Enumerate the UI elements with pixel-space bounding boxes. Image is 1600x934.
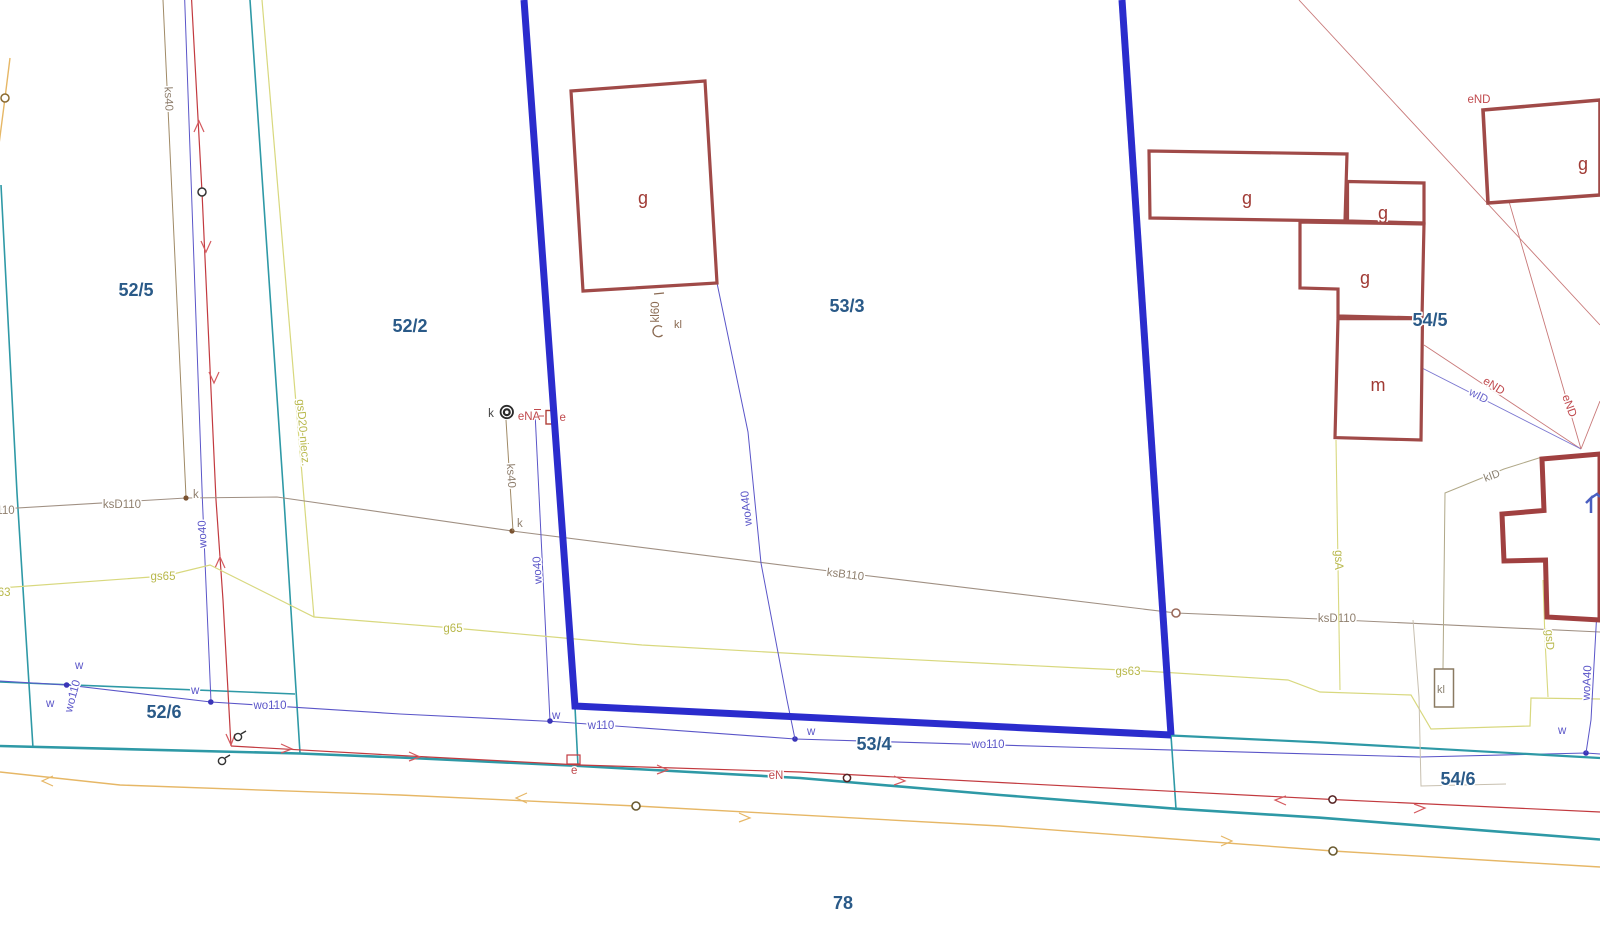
svg-text:ksD110: ksD110 [1318,613,1356,625]
svg-text:g: g [1378,203,1388,223]
svg-text:eN: eN [769,770,784,782]
svg-text:wo40: wo40 [197,520,210,549]
svg-text:g: g [638,188,648,208]
svg-text:52/2: 52/2 [392,316,427,336]
svg-text:wo110: wo110 [252,700,286,712]
svg-text:w: w [74,660,84,672]
svg-text:53/3: 53/3 [829,296,864,316]
svg-text:k: k [193,489,199,501]
svg-text:eNA: eNA [518,411,541,423]
svg-text:78: 78 [833,893,853,913]
svg-text:wo110: wo110 [970,739,1004,751]
svg-text:w110: w110 [587,720,615,732]
svg-text:ks40: ks40 [504,463,517,488]
svg-text:wo40: wo40 [531,556,544,585]
svg-text:e: e [560,412,566,424]
svg-text:52/6: 52/6 [146,702,181,722]
svg-text:w: w [551,710,561,722]
svg-text:w: w [806,726,816,738]
svg-text:eND: eND [1467,94,1490,106]
svg-text:kl60: kl60 [650,301,662,322]
svg-text:D110: D110 [0,505,15,517]
svg-text:m: m [1371,375,1386,395]
svg-text:s63: s63 [0,587,11,599]
svg-text:54/5: 54/5 [1412,310,1447,330]
svg-text:52/5: 52/5 [118,280,153,300]
svg-text:gs65: gs65 [151,571,176,583]
svg-text:gsD: gsD [1543,629,1556,650]
svg-text:w: w [1557,725,1567,737]
svg-text:kl: kl [1437,684,1445,696]
svg-text:gs63: gs63 [1116,666,1141,678]
svg-text:ksD110: ksD110 [103,499,141,511]
svg-text:g: g [1578,154,1588,174]
svg-text:k: k [488,408,494,420]
svg-text:w: w [45,698,55,710]
svg-text:54/6: 54/6 [1440,769,1475,789]
svg-text:gsA: gsA [1332,550,1344,570]
svg-text:ks40: ks40 [161,86,174,111]
svg-text:e: e [571,765,577,777]
svg-text:w: w [190,685,200,697]
svg-text:53/4: 53/4 [856,734,891,754]
svg-text:g65: g65 [443,623,462,635]
svg-text:k: k [517,518,523,530]
svg-text:kl: kl [674,319,682,331]
svg-text:woA40: woA40 [1581,665,1595,702]
svg-text:g: g [1242,188,1252,208]
svg-text:g: g [1360,268,1370,288]
